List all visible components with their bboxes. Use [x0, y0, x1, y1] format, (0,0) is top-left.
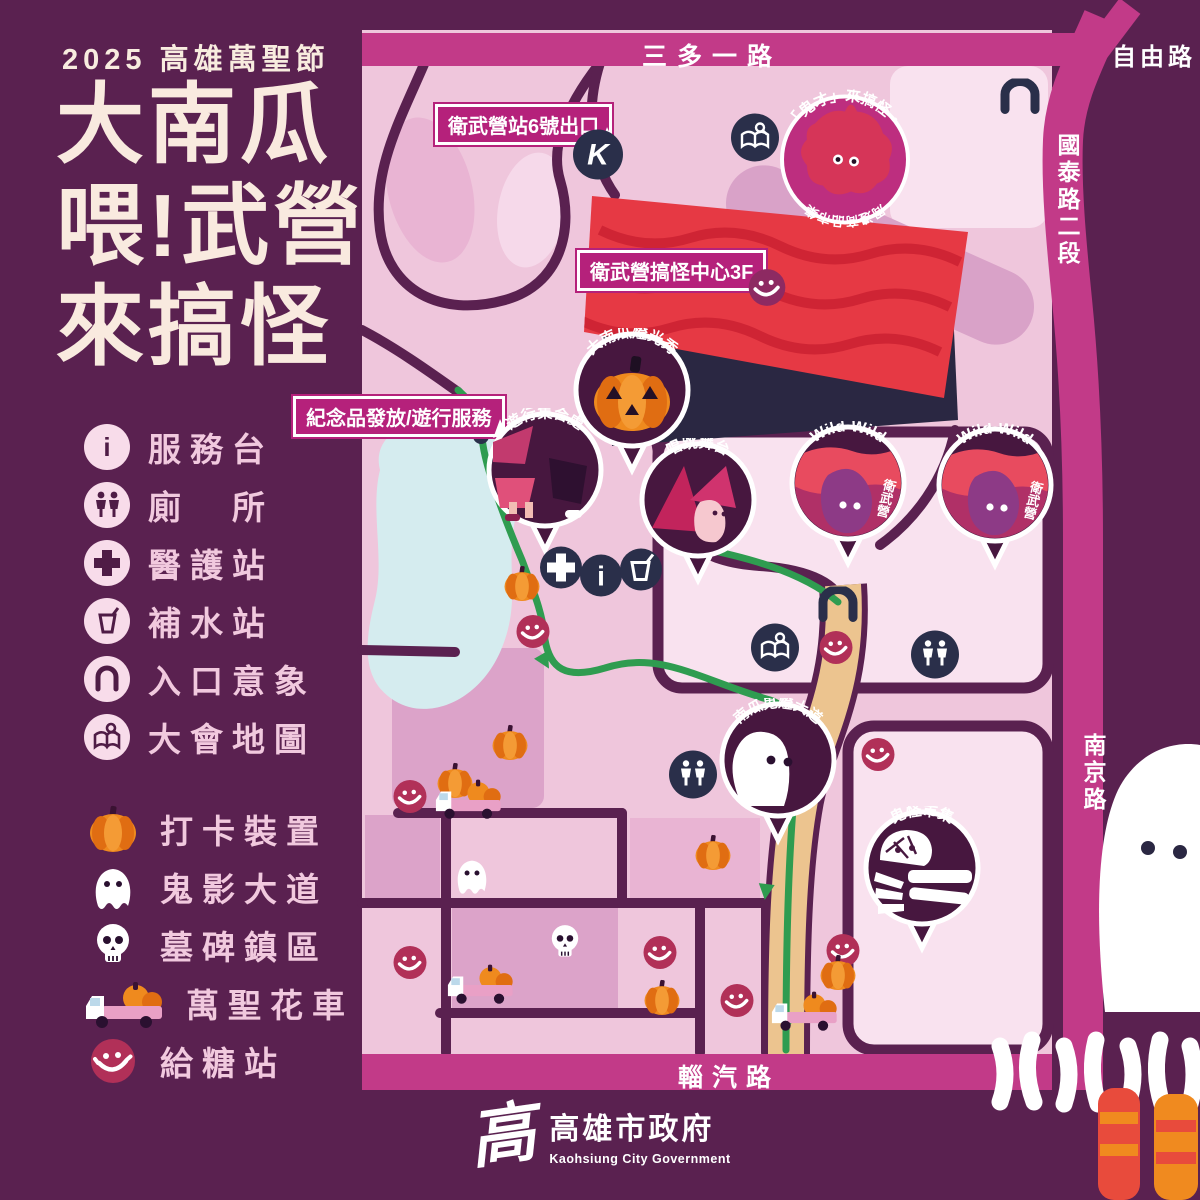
road-label-ziyou: 自由路 [1112, 37, 1196, 72]
legend-item-entrance: 入口意象 [84, 650, 316, 708]
medical-cross-icon [84, 540, 130, 586]
ghost-avenue-icon [453, 855, 491, 902]
footer-gov-logo: 高 高雄市政府 Kaohsiung City Government [469, 1102, 730, 1168]
poster-main-title: 大南瓜 喂!武營 來搞怪 [56, 74, 365, 377]
legend-facilities: i 服務台 廁 所 醫護站 補水站 入口意象 大會地圖 [84, 418, 316, 766]
pumpkin-photo-spot-icon [490, 724, 530, 767]
road-label-nanjing: 南京路 [1076, 733, 1110, 814]
legend-item-candy-station: 給糖站 [84, 1032, 354, 1090]
pumpkin-icon [84, 803, 142, 855]
svg-text:i: i [597, 561, 605, 592]
gov-name-zh: 高雄市政府 [549, 1104, 730, 1148]
entrance-arch-icon [84, 656, 130, 702]
entrance-arch-icon [998, 79, 1042, 120]
candy-station-icon [515, 614, 551, 655]
skull-icon [84, 919, 142, 971]
water-cup-icon [619, 548, 663, 597]
pin-wild-wild-weiwuying-1: 衛武營 Wild Wild [786, 421, 910, 576]
candy-station-icon [818, 630, 854, 671]
smiley-icon [84, 1035, 142, 1087]
road-label-guotai-sec2: 國泰路二段 [1050, 133, 1084, 268]
event-map-icon [730, 113, 780, 168]
pumpkin-photo-spot-icon [642, 979, 682, 1022]
ghost-icon [84, 861, 142, 913]
pin-wild-wild-weiwuying-2: 衛武營 Wild Wild [933, 423, 1057, 578]
info-icon: i [84, 424, 130, 470]
restroom-icon [910, 630, 960, 685]
tombstone-skull-icon [546, 922, 584, 969]
halloween-float-icon [434, 775, 506, 826]
kaohsiung-logo-glyph: 高 [465, 1098, 540, 1173]
candy-station-icon [642, 935, 678, 976]
medical-cross-icon [539, 546, 583, 595]
entrance-arch-icon [816, 587, 860, 628]
mrt-station-k-icon: K [572, 129, 624, 186]
event-map-icon [84, 714, 130, 760]
legend-item-restroom: 廁 所 [84, 476, 316, 534]
candy-station-icon [719, 983, 755, 1024]
candy-station-icon [392, 945, 428, 986]
pin-parade-assembly: 遊行集合處 [483, 408, 607, 563]
svg-text:i: i [103, 432, 110, 462]
road-label-sanduo-1st: 三多一路 [642, 37, 782, 73]
pumpkin-photo-spot-icon [502, 565, 542, 608]
title-line-3: 來搞怪 [56, 276, 365, 377]
legend-item-medical: 醫護站 [84, 534, 316, 592]
pin-ghost-market: 鬼怪市集 [860, 806, 984, 961]
candy-station-icon [860, 737, 896, 778]
legend-item-halloween-float: 萬聖花車 [84, 974, 354, 1032]
legend-features: 打卡裝置 鬼影大道 墓碑鎮區 萬聖花車 給糖站 [84, 800, 354, 1090]
title-line-2: 喂!武營 [56, 175, 365, 276]
callout-souvenir-parade-service: 紀念品發放/遊行服務 [293, 396, 505, 437]
callout-spook-center-3f: 衛武營搞怪中心3F [577, 250, 766, 291]
road-label-zihqi: 輜汽路 [678, 1058, 780, 1094]
legend-item-water: 補水站 [84, 592, 316, 650]
restroom-icon [84, 482, 130, 528]
halloween-map-poster: { "title": { "eyebrow": "2025 高雄萬聖節", "l… [0, 0, 1200, 1200]
pumpkin-photo-spot-icon [693, 834, 733, 877]
legend-item-event-map: 大會地圖 [84, 708, 316, 766]
candy-station-icon [392, 779, 428, 820]
halloween-float-icon [446, 960, 518, 1011]
svg-text:K: K [587, 139, 611, 172]
event-eyebrow-title: 2025 高雄萬聖節 [62, 36, 330, 78]
candy-station-icon [747, 268, 787, 313]
pin-pumpkin-lantern-avenue: 南瓜鬼燈大道 [716, 698, 840, 853]
title-line-1: 大南瓜 [56, 74, 365, 175]
water-cup-icon [84, 598, 130, 644]
gov-name-en: Kaohsiung City Government [549, 1152, 730, 1166]
legend-item-ghost-avenue: 鬼影大道 [84, 858, 354, 916]
legend-item-tombstone-town: 墓碑鎮區 [84, 916, 354, 974]
restroom-icon [668, 750, 718, 805]
halloween-float-icon [770, 987, 842, 1038]
legend-item-service-desk: i 服務台 [84, 418, 316, 476]
event-map-icon [750, 623, 800, 678]
info-icon: i [579, 554, 623, 603]
guicai-monster-badge: 「鬼才」來搞怪・ 周邊商品市集 [775, 90, 915, 235]
legend-item-photo-spot: 打卡裝置 [84, 800, 354, 858]
float-truck-icon [84, 977, 168, 1029]
